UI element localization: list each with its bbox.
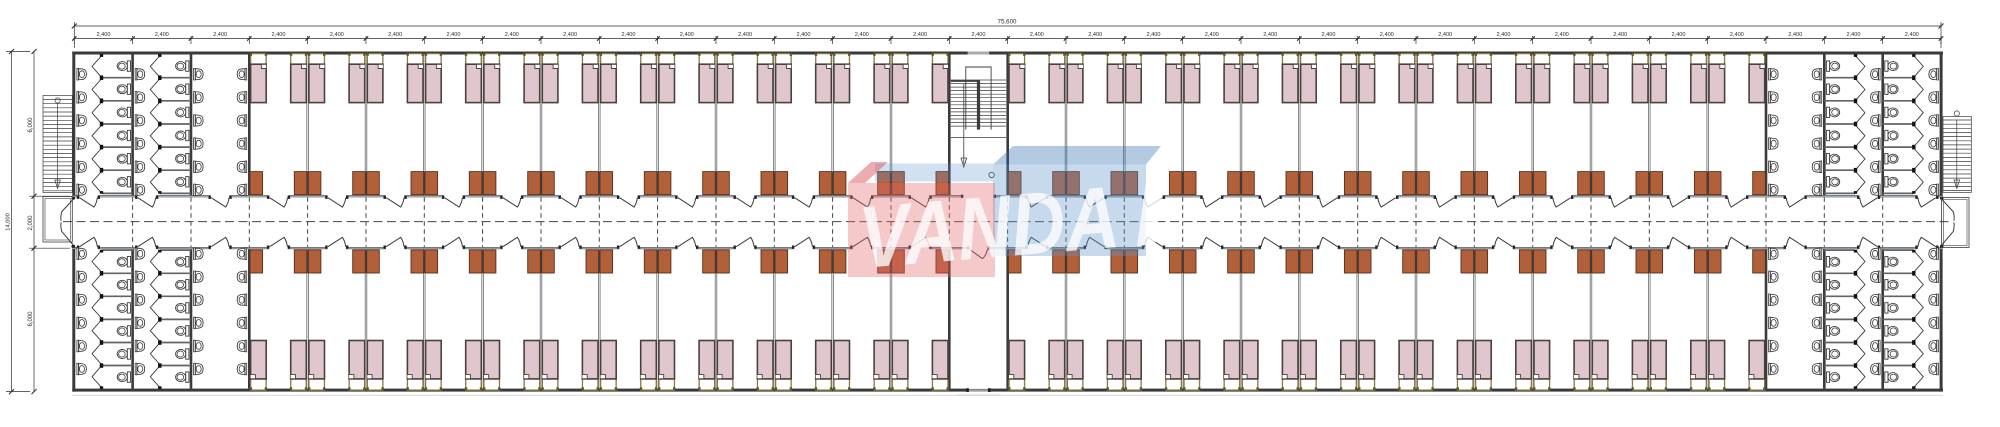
- svg-text:2,400: 2,400: [1613, 32, 1627, 38]
- svg-text:2,400: 2,400: [1380, 32, 1394, 38]
- svg-text:2,400: 2,400: [1847, 32, 1861, 38]
- svg-text:2,400: 2,400: [738, 32, 752, 38]
- svg-text:2,400: 2,400: [855, 32, 869, 38]
- svg-text:2,400: 2,400: [563, 32, 577, 38]
- svg-text:2,400: 2,400: [1788, 32, 1802, 38]
- svg-text:2,400: 2,400: [213, 32, 227, 38]
- svg-text:2,400: 2,400: [972, 32, 986, 38]
- svg-text:2,400: 2,400: [622, 32, 636, 38]
- svg-text:2,400: 2,400: [388, 32, 402, 38]
- svg-text:2,400: 2,400: [97, 32, 111, 38]
- svg-text:2,400: 2,400: [1555, 32, 1569, 38]
- svg-text:75,600: 75,600: [998, 19, 1017, 26]
- svg-text:2,400: 2,400: [1672, 32, 1686, 38]
- svg-text:2,400: 2,400: [1497, 32, 1511, 38]
- svg-text:2,400: 2,400: [680, 32, 694, 38]
- svg-text:6,000: 6,000: [28, 117, 34, 133]
- svg-text:2,400: 2,400: [1030, 32, 1044, 38]
- svg-text:2,400: 2,400: [1322, 32, 1336, 38]
- svg-text:2,400: 2,400: [155, 32, 169, 38]
- svg-text:6,000: 6,000: [28, 311, 34, 327]
- svg-text:2,400: 2,400: [1905, 32, 1919, 38]
- svg-text:2,400: 2,400: [1088, 32, 1102, 38]
- svg-text:2,400: 2,400: [330, 32, 344, 38]
- svg-text:2,400: 2,400: [1147, 32, 1161, 38]
- svg-text:2,400: 2,400: [1730, 32, 1744, 38]
- svg-text:2,400: 2,400: [1263, 32, 1277, 38]
- svg-text:2,400: 2,400: [447, 32, 461, 38]
- svg-text:2,400: 2,400: [505, 32, 519, 38]
- svg-text:2,400: 2,400: [913, 32, 927, 38]
- svg-text:2,400: 2,400: [1205, 32, 1219, 38]
- svg-text:2,400: 2,400: [797, 32, 811, 38]
- svg-text:2,400: 2,400: [272, 32, 286, 38]
- svg-text:14,000: 14,000: [6, 213, 12, 231]
- svg-text:2,400: 2,400: [1438, 32, 1452, 38]
- svg-text:2,000: 2,000: [28, 215, 34, 231]
